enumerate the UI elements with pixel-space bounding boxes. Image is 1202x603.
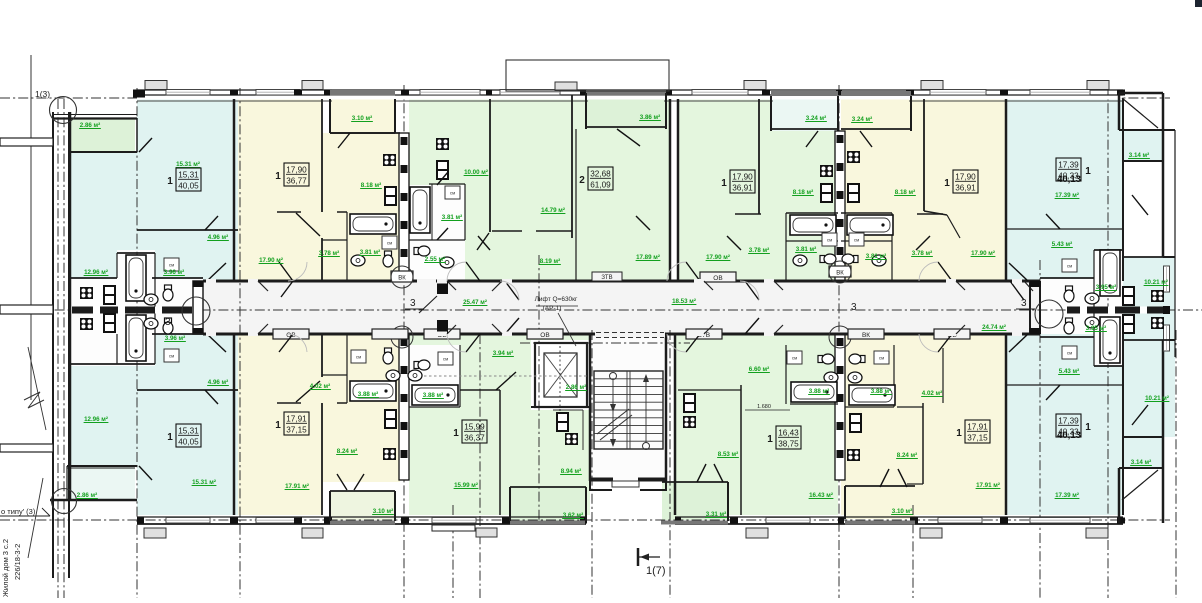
svg-text:1: 1 [275, 420, 281, 431]
svg-text:8.53 м²: 8.53 м² [718, 451, 738, 458]
svg-text:17.90 м²: 17.90 м² [259, 257, 283, 264]
svg-text:3.24 м²: 3.24 м² [852, 116, 872, 123]
svg-text:о типу’ (3): о типу’ (3) [1, 507, 36, 516]
svg-text:17.39 м²: 17.39 м² [1055, 192, 1079, 199]
svg-text:1: 1 [275, 171, 281, 182]
svg-text:3.88 м²: 3.88 м² [871, 388, 891, 395]
svg-text:1: 1 [944, 178, 950, 189]
svg-text:16.43 м²: 16.43 м² [809, 492, 833, 499]
svg-text:3.14 м²: 3.14 м² [1131, 459, 1151, 466]
svg-text:ОВ: ОВ [713, 275, 722, 282]
svg-text:40,13: 40,13 [1057, 174, 1081, 185]
svg-text:3.10 м²: 3.10 м² [373, 508, 393, 515]
svg-text:36,37: 36,37 [464, 434, 485, 443]
svg-text:15.31 м²: 15.31 м² [192, 479, 216, 486]
svg-text:15,31: 15,31 [178, 171, 199, 180]
svg-text:17.91 м²: 17.91 м² [285, 483, 309, 490]
svg-text:1: 1 [956, 428, 962, 439]
svg-text:17,91: 17,91 [286, 415, 307, 424]
svg-text:4.02 м²: 4.02 м² [922, 390, 942, 397]
svg-text:36,91: 36,91 [955, 184, 976, 193]
svg-text:ОВ: ОВ [540, 332, 549, 339]
svg-text:3.88 м²: 3.88 м² [423, 392, 443, 399]
svg-text:15,99: 15,99 [464, 423, 485, 432]
svg-text:12.96 м²: 12.96 м² [84, 416, 108, 423]
svg-text:3.81 м²: 3.81 м² [796, 246, 816, 253]
svg-text:17.89 м²: 17.89 м² [636, 254, 660, 261]
svg-text:8.24 м²: 8.24 м² [897, 452, 917, 459]
svg-text:1: 1 [453, 428, 459, 439]
svg-text:37,15: 37,15 [967, 434, 988, 443]
svg-text:24.74 м²: 24.74 м² [982, 324, 1006, 331]
svg-text:ВК: ВК [862, 332, 870, 339]
svg-text:1: 1 [721, 178, 727, 189]
svg-text:1: 1 [1085, 422, 1091, 433]
svg-text:2.86 м²: 2.86 м² [566, 384, 586, 391]
svg-text:Жилой дом 3 с.2: Жилой дом 3 с.2 [1, 539, 10, 597]
svg-text:Лифт Q=630кг: Лифт Q=630кг [535, 296, 578, 303]
svg-text:ВК: ВК [836, 271, 844, 277]
svg-text:15.31 м²: 15.31 м² [176, 161, 200, 168]
svg-text:3.81 м²: 3.81 м² [360, 249, 380, 256]
svg-text:3.86 м²: 3.86 м² [640, 114, 660, 121]
svg-text:3.14 м²: 3.14 м² [1129, 152, 1149, 159]
svg-text:3.95 м²: 3.95 м² [1096, 284, 1116, 291]
svg-text:16,43: 16,43 [778, 429, 799, 438]
svg-text:40,05: 40,05 [178, 438, 199, 447]
svg-text:4.96 м²: 4.96 м² [208, 234, 228, 241]
svg-text:3.96 м²: 3.96 м² [165, 335, 185, 342]
svg-text:2: 2 [579, 175, 585, 186]
svg-text:17,39: 17,39 [1058, 161, 1079, 170]
svg-text:8.18 м²: 8.18 м² [793, 189, 813, 196]
svg-text:226/18-3-2: 226/18-3-2 [13, 544, 22, 580]
svg-text:ЗТВ: ЗТВ [601, 275, 612, 281]
svg-text:10.21 м²: 10.21 м² [1144, 279, 1168, 286]
svg-text:8.94 м²: 8.94 м² [561, 468, 581, 475]
svg-text:17.91 м²: 17.91 м² [976, 482, 1000, 489]
svg-text:3.95 м²: 3.95 м² [1086, 325, 1106, 332]
svg-text:3.78 м²: 3.78 м² [319, 250, 339, 257]
svg-text:3.10 м²: 3.10 м² [892, 508, 912, 515]
svg-text:2.86 м²: 2.86 м² [77, 492, 97, 499]
svg-text:14.79 м²: 14.79 м² [541, 207, 565, 214]
svg-text:17.39 м²: 17.39 м² [1055, 492, 1079, 499]
svg-text:3.88 м²: 3.88 м² [358, 391, 378, 398]
svg-text:17,39: 17,39 [1058, 417, 1079, 426]
svg-text:40,05: 40,05 [178, 182, 199, 191]
svg-text:3.62 м²: 3.62 м² [563, 512, 583, 519]
svg-text:1(7): 1(7) [646, 565, 666, 577]
svg-text:18.53 м²: 18.53 м² [672, 298, 696, 305]
svg-text:3.96 м²: 3.96 м² [164, 269, 184, 276]
svg-text:15,31: 15,31 [178, 427, 199, 436]
svg-text:12.96 м²: 12.96 м² [84, 269, 108, 276]
svg-text:17,91: 17,91 [967, 423, 988, 432]
svg-text:3.10 м²: 3.10 м² [352, 115, 372, 122]
svg-text:1.680: 1.680 [757, 404, 771, 410]
svg-text:4.02 м²: 4.02 м² [310, 383, 330, 390]
svg-text:37,15: 37,15 [286, 426, 307, 435]
svg-text:17.90 м²: 17.90 м² [706, 254, 730, 261]
svg-text:17.90 м²: 17.90 м² [971, 250, 995, 257]
svg-text:2.86 м²: 2.86 м² [80, 122, 100, 129]
svg-text:3: 3 [410, 298, 416, 309]
svg-text:2.55 м²: 2.55 м² [425, 256, 445, 263]
svg-text:61,09: 61,09 [590, 181, 611, 190]
svg-text:8.18 м²: 8.18 м² [895, 189, 915, 196]
svg-text:3.31 м²: 3.31 м² [706, 511, 726, 518]
svg-text:36,91: 36,91 [732, 184, 753, 193]
svg-text:1: 1 [1085, 166, 1091, 177]
svg-text:1: 1 [167, 176, 173, 187]
svg-text:3.81 м²: 3.81 м² [866, 253, 886, 260]
svg-text:3.24 м²: 3.24 м² [806, 115, 826, 122]
svg-text:3.88 м²: 3.88 м² [809, 388, 829, 395]
svg-text:36,77: 36,77 [286, 177, 307, 186]
svg-text:1: 1 [767, 434, 773, 445]
svg-text:3: 3 [165, 317, 171, 328]
svg-text:15.99 м²: 15.99 м² [454, 482, 478, 489]
svg-text:5.43 м²: 5.43 м² [1059, 368, 1079, 375]
svg-text:17,90: 17,90 [732, 173, 753, 182]
svg-text:1: 1 [167, 432, 173, 443]
svg-text:8.19 м²: 8.19 м² [540, 258, 560, 265]
svg-text:32,68: 32,68 [590, 170, 611, 179]
svg-text:3.78 м²: 3.78 м² [749, 247, 769, 254]
svg-text:25.47 м²: 25.47 м² [463, 299, 487, 306]
svg-text:10.00 м²: 10.00 м² [464, 169, 488, 176]
svg-text:40,13: 40,13 [1057, 430, 1081, 441]
svg-text:3.81 м²: 3.81 м² [442, 214, 462, 221]
svg-text:8.24 м²: 8.24 м² [337, 448, 357, 455]
svg-text:4.96 м²: 4.96 м² [208, 379, 228, 386]
svg-text:3: 3 [851, 302, 857, 313]
svg-text:ВК: ВК [398, 276, 406, 282]
svg-text:1(3): 1(3) [35, 89, 50, 99]
svg-text:8.18 м²: 8.18 м² [361, 182, 381, 189]
svg-text:3.94 м²: 3.94 м² [493, 350, 513, 357]
svg-text:17,90: 17,90 [286, 166, 307, 175]
svg-text:6.60 м²: 6.60 м² [749, 366, 769, 373]
svg-text:3: 3 [1021, 298, 1027, 309]
svg-text:3.78 м²: 3.78 м² [912, 250, 932, 257]
svg-text:5.43 м²: 5.43 м² [1052, 241, 1072, 248]
svg-text:17,90: 17,90 [955, 173, 976, 182]
svg-text:10.21 м²: 10.21 м² [1145, 395, 1169, 402]
svg-text:38,75: 38,75 [778, 440, 799, 449]
